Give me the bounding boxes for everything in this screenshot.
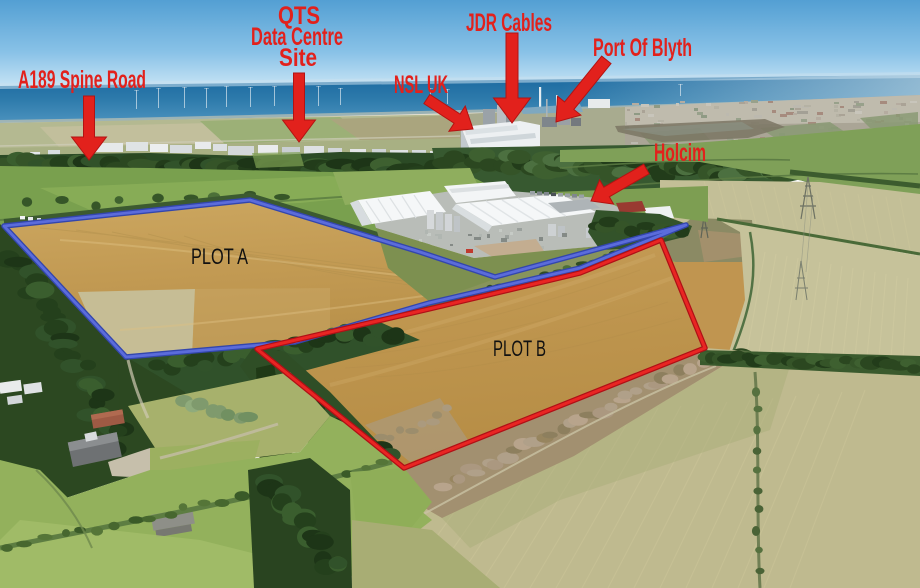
svg-text:Port Of Blyth: Port Of Blyth <box>593 34 692 62</box>
svg-text:PLOT A: PLOT A <box>191 244 248 269</box>
svg-text:NSL UK: NSL UK <box>394 71 448 99</box>
svg-text:JDR Cables: JDR Cables <box>466 9 552 37</box>
svg-text:Site: Site <box>279 44 317 72</box>
svg-text:A189 Spine Road: A189 Spine Road <box>18 66 146 94</box>
svg-text:Holcim: Holcim <box>654 139 706 167</box>
svg-text:PLOT B: PLOT B <box>493 336 546 361</box>
